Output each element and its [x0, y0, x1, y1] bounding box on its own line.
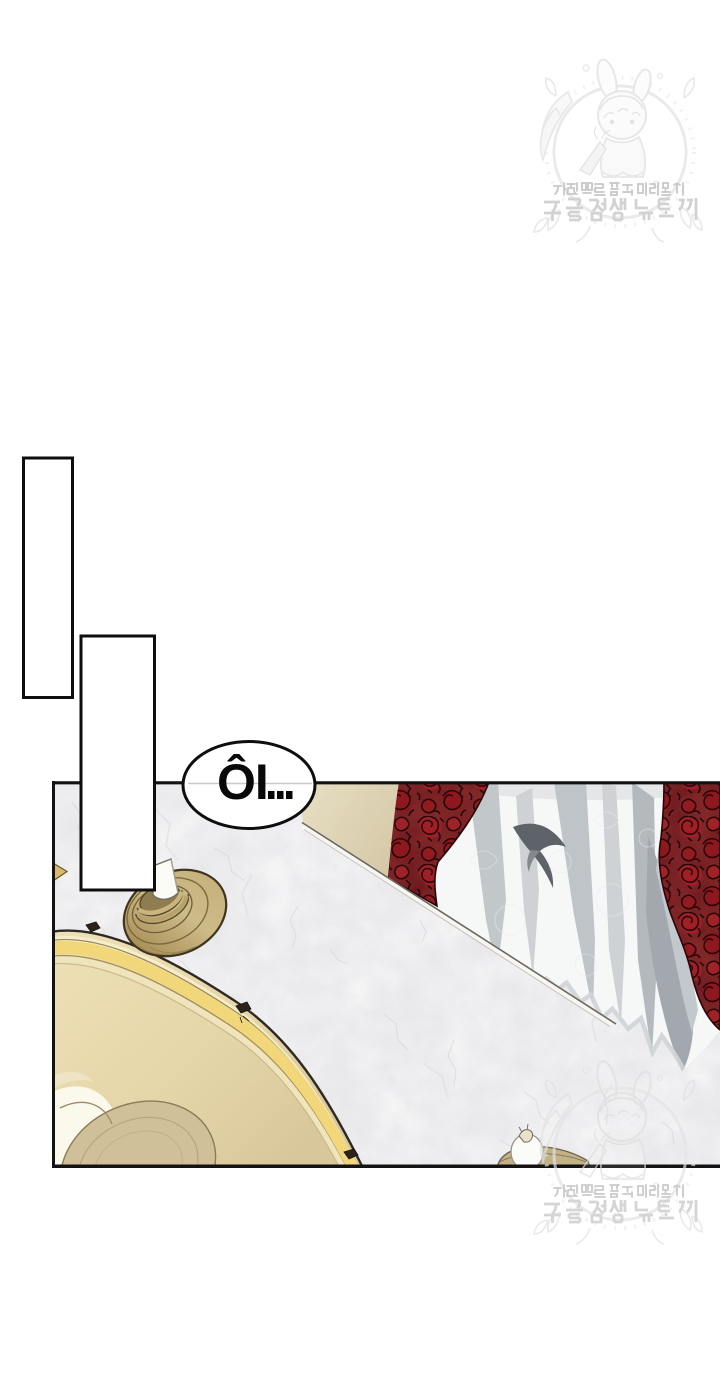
svg-text:ÔI: ÔI: [217, 753, 268, 810]
